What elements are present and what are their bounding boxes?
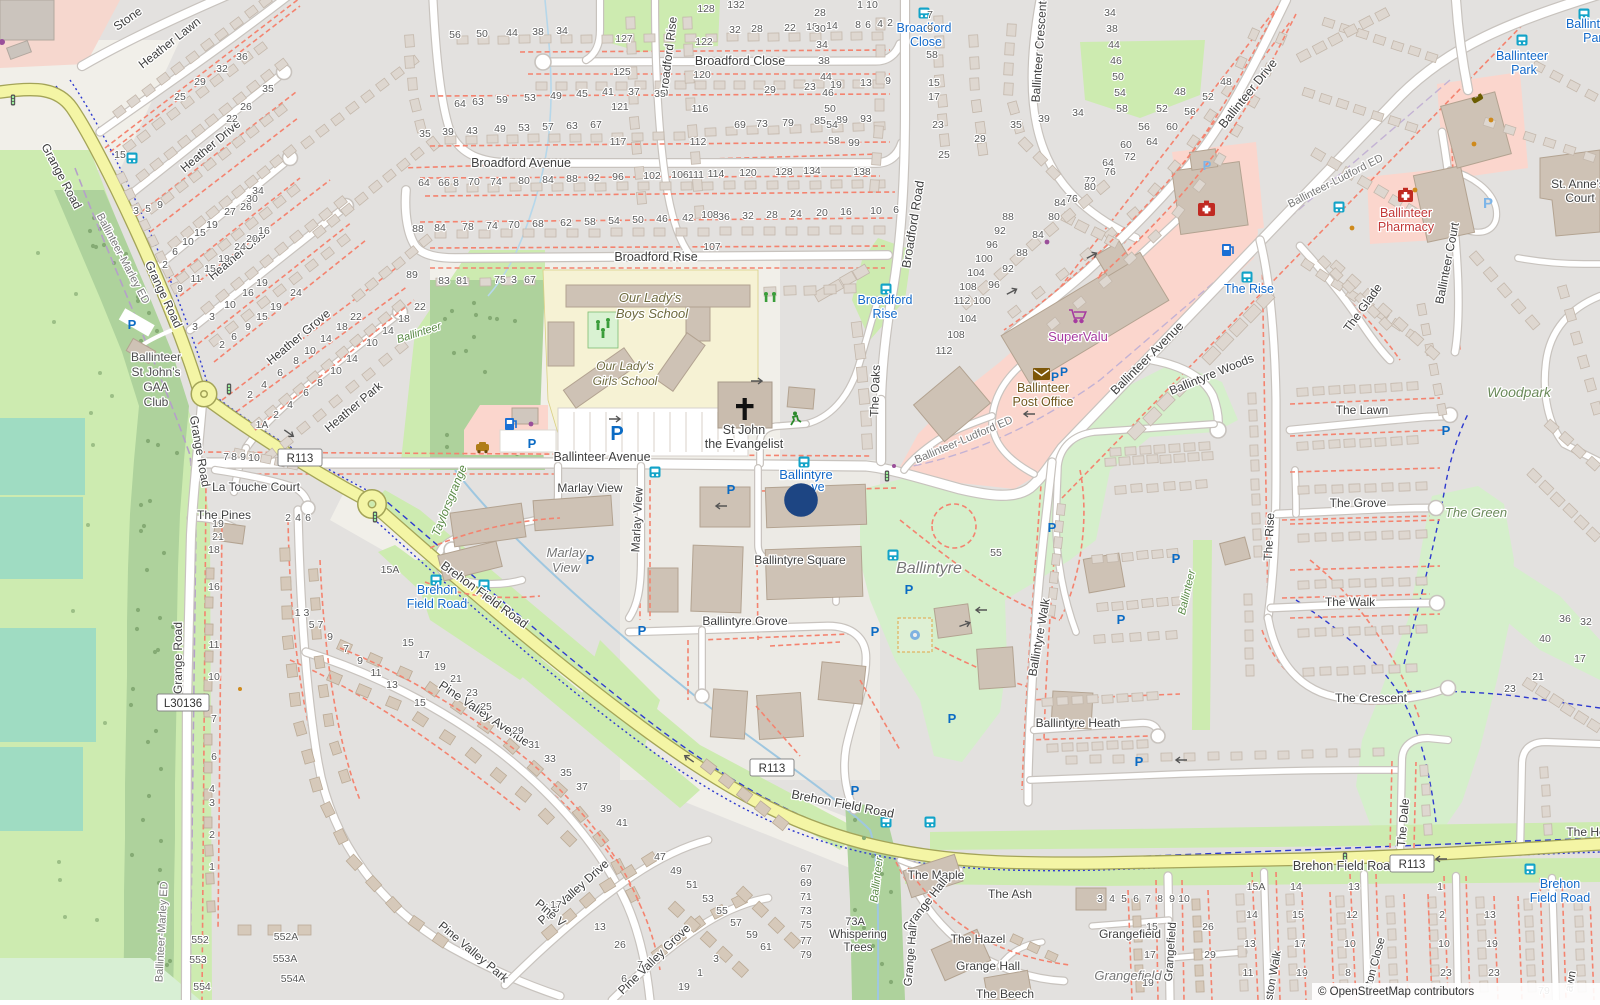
svg-text:Broadford Avenue: Broadford Avenue [471,156,571,170]
svg-text:44: 44 [1108,39,1120,51]
svg-text:10: 10 [224,299,236,311]
svg-text:9: 9 [245,321,251,333]
svg-text:Marlay View: Marlay View [557,481,622,495]
svg-text:64: 64 [454,98,466,110]
svg-text:61: 61 [760,941,772,953]
svg-text:75: 75 [494,274,506,286]
svg-text:125: 125 [613,66,631,78]
svg-text:89: 89 [836,114,848,126]
svg-text:P: P [1048,520,1057,535]
svg-text:P: P [1135,754,1144,769]
svg-text:11: 11 [209,639,220,651]
svg-text:49: 49 [494,123,506,135]
svg-text:554A: 554A [281,973,306,985]
svg-text:84: 84 [1054,197,1066,209]
svg-text:The He: The He [1566,825,1600,839]
svg-text:67: 67 [524,274,536,286]
svg-text:27: 27 [224,206,236,218]
svg-text:2: 2 [209,829,215,841]
svg-text:26: 26 [240,101,252,113]
svg-text:138: 138 [853,166,871,178]
svg-text:74: 74 [486,220,498,232]
svg-text:554: 554 [193,981,211,993]
svg-text:P: P [1442,423,1451,438]
svg-text:76: 76 [1066,193,1078,205]
svg-text:15: 15 [402,637,414,649]
svg-text:3: 3 [713,953,719,965]
svg-text:29: 29 [194,76,206,88]
svg-text:66: 66 [438,177,450,189]
svg-text:43: 43 [466,125,478,137]
svg-text:60: 60 [1166,121,1178,133]
svg-text:1 3: 1 3 [295,607,310,619]
svg-text:St John: St John [723,423,765,437]
svg-text:81: 81 [456,275,468,287]
svg-text:15: 15 [204,263,216,275]
svg-text:La Touche Court: La Touche Court [212,480,301,494]
svg-text:11: 11 [371,667,382,679]
svg-text:Broadford: Broadford [897,21,952,35]
svg-text:50: 50 [824,103,836,115]
svg-text:71: 71 [800,891,812,903]
svg-text:7: 7 [637,959,643,971]
svg-text:62: 62 [560,217,572,229]
svg-text:49: 49 [670,865,682,877]
svg-text:Field Road: Field Road [407,597,467,611]
svg-text:7: 7 [927,9,933,21]
svg-text:64: 64 [418,177,430,189]
svg-text:552A: 552A [274,931,299,943]
svg-text:58: 58 [828,135,840,147]
svg-text:P: P [1203,158,1212,173]
svg-text:112: 112 [954,295,971,307]
svg-text:The Hazel: The Hazel [951,932,1006,946]
svg-text:R113: R113 [1399,859,1426,871]
svg-text:88: 88 [566,173,578,185]
svg-text:The Green: The Green [1445,505,1507,520]
svg-text:2: 2 [247,389,253,401]
svg-text:58: 58 [584,216,596,228]
svg-text:38: 38 [532,26,544,38]
svg-text:P: P [610,423,623,445]
svg-text:8: 8 [1157,893,1163,905]
svg-text:100: 100 [975,253,993,265]
svg-text:24: 24 [234,241,246,253]
svg-text:34: 34 [1104,7,1116,19]
svg-text:9: 9 [327,631,333,643]
svg-text:41: 41 [602,86,614,98]
svg-text:SuperValu: SuperValu [1048,329,1108,344]
svg-text:9: 9 [177,283,183,295]
svg-text:13: 13 [386,679,398,691]
svg-text:80: 80 [518,175,530,187]
svg-text:38: 38 [1106,23,1118,35]
svg-text:46: 46 [656,213,668,225]
svg-text:19: 19 [270,301,282,313]
svg-text:54: 54 [826,119,838,131]
svg-text:40: 40 [1539,633,1551,645]
svg-text:128: 128 [775,166,793,178]
svg-text:Ballintyre Square: Ballintyre Square [754,553,846,567]
svg-text:Broadford Close: Broadford Close [695,54,785,68]
svg-text:© OpenStreetMap contributors: © OpenStreetMap contributors [1318,986,1474,998]
svg-text:11: 11 [191,273,202,285]
svg-text:39: 39 [442,126,454,138]
svg-text:18: 18 [208,544,220,556]
svg-text:16: 16 [242,287,254,299]
svg-text:42: 42 [682,212,694,224]
svg-text:Brehon: Brehon [1540,877,1580,891]
svg-text:46: 46 [1110,55,1122,67]
svg-text:15: 15 [1292,909,1304,921]
svg-text:5 7: 5 7 [309,619,324,631]
svg-text:23: 23 [1504,683,1516,695]
svg-text:23: 23 [466,687,478,699]
svg-text:9: 9 [240,451,246,463]
svg-text:Ballintyre Grove: Ballintyre Grove [702,614,788,628]
svg-text:19: 19 [434,661,446,673]
svg-text:19: 19 [1486,938,1498,950]
svg-text:19: 19 [218,253,230,265]
svg-text:P: P [727,482,736,497]
svg-text:6: 6 [621,973,627,985]
svg-text:75: 75 [800,919,812,931]
svg-text:The Rise: The Rise [1261,512,1278,561]
svg-text:96: 96 [612,171,624,183]
svg-text:Field Road: Field Road [1530,891,1590,905]
svg-text:The Oaks: The Oaks [867,365,883,417]
svg-text:38: 38 [818,55,830,67]
svg-text:53: 53 [702,893,714,905]
svg-text:3: 3 [209,311,215,323]
svg-text:104: 104 [967,267,985,279]
svg-text:6: 6 [172,246,178,258]
svg-text:P: P [528,436,537,451]
svg-text:132: 132 [727,0,745,11]
svg-text:Our Lady's: Our Lady's [619,290,682,305]
svg-text:89: 89 [406,269,418,281]
svg-text:15: 15 [256,311,268,323]
svg-text:14: 14 [1246,909,1258,921]
svg-text:33: 33 [544,753,556,765]
svg-text:13: 13 [1244,938,1256,950]
svg-text:7: 7 [211,713,217,725]
svg-text:19: 19 [678,981,690,993]
svg-text:Broadford: Broadford [858,293,913,307]
svg-text:34: 34 [816,39,828,51]
svg-text:69: 69 [734,119,746,131]
svg-text:121: 121 [611,101,629,113]
svg-text:R113: R113 [287,453,314,465]
svg-text:10: 10 [1178,893,1190,905]
svg-text:21: 21 [450,673,462,685]
svg-text:Ballintyre: Ballintyre [896,560,962,577]
svg-text:2: 2 [219,339,225,351]
svg-text:120: 120 [693,69,711,81]
svg-text:85: 85 [814,115,826,127]
svg-text:32: 32 [1580,616,1592,628]
svg-text:44: 44 [820,71,832,83]
svg-text:83: 83 [438,275,450,287]
svg-text:8: 8 [231,451,237,463]
svg-text:67: 67 [800,863,812,875]
svg-text:15A: 15A [381,564,400,576]
svg-text:12: 12 [1346,909,1358,921]
svg-text:55: 55 [990,547,1002,559]
svg-text:4: 4 [295,512,301,524]
svg-text:P: P [1172,551,1181,566]
svg-text:79: 79 [782,117,794,129]
svg-text:96: 96 [988,279,1000,291]
svg-text:70: 70 [508,219,520,231]
svg-text:P: P [638,623,647,638]
svg-text:88: 88 [1002,211,1014,223]
svg-text:23: 23 [1488,967,1500,979]
svg-text:8: 8 [317,377,323,389]
svg-text:4: 4 [1109,893,1115,905]
svg-text:10: 10 [866,0,878,11]
svg-text:72: 72 [1124,151,1136,163]
svg-text:92: 92 [1002,263,1014,275]
svg-text:14: 14 [382,325,394,337]
svg-text:4: 4 [877,18,883,30]
svg-text:39: 39 [1038,113,1050,125]
svg-text:116: 116 [692,103,709,115]
svg-text:59: 59 [746,929,758,941]
svg-text:26: 26 [1202,921,1214,933]
svg-text:View: View [552,560,582,575]
svg-text:Girls School: Girls School [593,374,658,388]
svg-text:6: 6 [1133,893,1139,905]
svg-text:15: 15 [114,149,126,161]
svg-text:The Pines: The Pines [197,508,251,522]
svg-text:Ballinteer: Ballinteer [1017,381,1069,395]
svg-text:64: 64 [1146,136,1158,148]
svg-text:128: 128 [697,3,715,15]
svg-text:553A: 553A [273,953,298,965]
svg-text:8: 8 [1345,967,1351,979]
svg-text:St John's: St John's [132,365,181,379]
svg-text:6: 6 [893,204,899,216]
svg-text:The Crescent: The Crescent [1335,691,1408,705]
svg-text:78: 78 [462,221,474,233]
svg-text:3: 3 [209,797,215,809]
svg-text:Grange Road: Grange Road [171,622,185,694]
svg-text:17: 17 [550,899,562,911]
svg-text:73: 73 [800,905,812,917]
svg-text:122: 122 [695,36,713,48]
svg-text:10: 10 [182,236,194,248]
svg-text:P: P [851,783,860,798]
svg-text:112: 112 [690,136,707,148]
svg-text:14: 14 [1290,881,1302,893]
svg-text:10: 10 [208,671,220,683]
svg-text:11: 11 [1243,967,1254,979]
svg-text:Broadford Rise: Broadford Rise [614,250,697,264]
svg-text:10: 10 [1438,938,1450,950]
svg-text:20: 20 [246,233,258,245]
svg-text:80: 80 [1084,181,1096,193]
svg-text:19: 19 [212,518,224,530]
svg-text:4: 4 [209,783,215,795]
svg-text:50: 50 [476,28,488,40]
svg-text:36: 36 [718,211,730,223]
svg-text:9: 9 [357,655,363,667]
svg-text:88: 88 [1016,247,1028,259]
svg-text:Ballinteer: Ballinteer [1566,17,1600,31]
svg-text:47: 47 [654,851,666,863]
svg-text:3: 3 [1097,893,1103,905]
svg-text:57: 57 [542,121,554,133]
svg-text:15: 15 [414,697,426,709]
svg-text:14: 14 [346,353,358,365]
svg-text:51: 51 [686,879,698,891]
svg-text:44: 44 [506,27,518,39]
svg-text:4: 4 [287,399,293,411]
svg-text:35: 35 [654,88,666,100]
svg-text:60: 60 [1120,139,1132,151]
svg-text:9: 9 [157,199,163,211]
svg-text:24: 24 [790,208,802,220]
svg-text:5: 5 [1121,893,1127,905]
svg-text:50: 50 [632,214,644,226]
svg-text:18: 18 [336,321,348,333]
svg-text:1: 1 [857,0,863,11]
svg-text:19: 19 [1142,977,1154,989]
svg-text:14: 14 [320,333,332,345]
svg-text:37: 37 [576,781,588,793]
svg-text:96: 96 [986,239,998,251]
svg-text:49: 49 [550,90,562,102]
svg-text:32: 32 [729,24,741,36]
svg-text:24: 24 [290,287,302,299]
svg-text:58: 58 [926,49,938,61]
svg-text:34: 34 [1072,107,1084,119]
svg-text:127: 127 [615,33,633,45]
svg-text:34: 34 [556,25,568,37]
svg-text:35: 35 [560,767,572,779]
svg-text:Park: Park [1583,31,1600,45]
svg-text:Ballintyre: Ballintyre [779,467,832,482]
svg-text:14: 14 [826,20,838,32]
svg-text:13: 13 [1484,909,1496,921]
svg-text:8: 8 [855,19,861,31]
svg-text:102: 102 [643,170,661,182]
svg-text:15: 15 [928,77,940,89]
svg-text:26: 26 [240,201,252,213]
svg-text:17: 17 [1294,938,1306,950]
svg-text:35: 35 [1010,119,1022,131]
svg-text:9: 9 [1169,893,1175,905]
svg-text:35: 35 [419,128,431,140]
svg-text:29: 29 [974,133,986,145]
svg-text:41: 41 [616,817,628,829]
svg-text:Court: Court [1565,191,1595,205]
svg-text:P: P [1483,195,1493,212]
svg-text:Rise: Rise [872,307,897,321]
svg-text:28: 28 [751,23,763,35]
svg-text:3: 3 [511,274,517,286]
svg-text:84: 84 [542,174,554,186]
svg-text:Our Lady's: Our Lady's [596,359,654,373]
svg-text:2: 2 [273,409,279,421]
svg-text:53: 53 [524,92,536,104]
svg-text:53: 53 [518,122,530,134]
svg-text:P: P [871,624,880,639]
svg-text:107: 107 [703,241,721,253]
svg-text:Ballintyre Heath: Ballintyre Heath [1036,716,1121,730]
svg-text:Boys School: Boys School [616,306,689,321]
svg-text:13: 13 [860,77,872,89]
svg-text:30: 30 [814,23,826,35]
svg-text:23: 23 [932,119,944,131]
svg-text:Post Office: Post Office [1013,395,1074,409]
svg-text:79: 79 [800,949,812,961]
svg-text:73: 73 [756,118,768,130]
svg-text:P: P [586,552,595,567]
svg-text:48: 48 [1174,86,1186,98]
svg-text:The Walk: The Walk [1325,595,1376,609]
svg-text:the Evangelist: the Evangelist [705,437,784,451]
svg-text:25: 25 [938,149,950,161]
svg-text:108: 108 [959,281,977,293]
svg-text:P: P [948,711,957,726]
svg-text:2: 2 [285,512,291,524]
svg-text:19: 19 [206,219,218,231]
svg-text:Park: Park [1511,63,1537,77]
svg-text:2: 2 [1439,909,1445,921]
svg-text:35: 35 [262,83,274,95]
svg-text:112: 112 [936,345,953,357]
svg-text:Whispering: Whispering [829,929,887,941]
svg-text:21: 21 [1532,671,1544,683]
svg-text:54: 54 [1114,87,1126,99]
svg-text:R113: R113 [759,763,786,775]
svg-text:19: 19 [256,277,268,289]
svg-text:22: 22 [414,301,426,313]
svg-text:Grange Hall: Grange Hall [956,959,1020,973]
svg-text:29: 29 [764,84,776,96]
svg-text:9: 9 [927,23,933,35]
svg-text:552: 552 [191,934,209,946]
svg-text:36: 36 [236,51,248,63]
svg-text:54: 54 [608,215,620,227]
svg-text:57: 57 [730,917,742,929]
svg-text:73A: 73A [845,916,865,928]
svg-text:1: 1 [697,967,703,979]
svg-text:52: 52 [1202,91,1214,103]
svg-text:Club: Club [144,395,169,409]
svg-text:P: P [1117,612,1126,627]
svg-text:2: 2 [162,259,168,271]
svg-text:26: 26 [614,939,626,951]
svg-text:50: 50 [1112,71,1124,83]
svg-text:69: 69 [800,877,812,889]
svg-text:22: 22 [350,311,362,323]
svg-text:L30136: L30136 [164,698,202,710]
svg-text:13: 13 [1348,881,1360,893]
svg-text:56: 56 [1138,121,1150,133]
svg-text:Pharmacy: Pharmacy [1378,220,1435,234]
svg-text:22: 22 [784,22,796,34]
svg-text:28: 28 [814,7,826,19]
svg-text:Marlay: Marlay [546,545,587,560]
svg-text:15: 15 [1146,921,1158,933]
svg-text:108: 108 [701,209,719,221]
svg-text:45: 45 [576,88,588,100]
svg-text:56: 56 [449,29,461,41]
svg-text:10: 10 [248,452,260,464]
